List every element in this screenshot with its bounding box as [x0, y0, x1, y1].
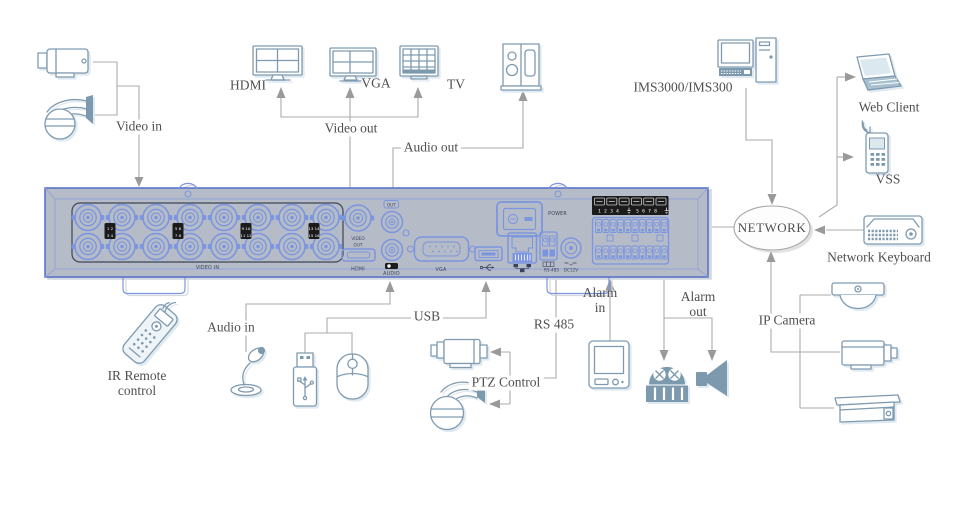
label-audio-out: Audio out	[401, 141, 461, 156]
speaker-icon	[501, 44, 541, 90]
alarm-numbers-right: 5 6 7 8	[636, 209, 658, 215]
label-network: NETWORK	[738, 221, 807, 235]
label-video-in: Video in	[113, 120, 165, 135]
panel-video-in-label: VIDEO IN	[196, 265, 220, 271]
ip-box-camera-icon	[842, 341, 897, 369]
usb-mouse-icon	[337, 354, 368, 399]
svg-text:3 4: 3 4	[107, 233, 114, 238]
hdmi-monitor-icon	[253, 46, 302, 80]
svg-text:11 12: 11 12	[240, 233, 252, 238]
alarm-input-device-icon	[589, 341, 629, 388]
web-client-laptop-icon	[857, 54, 901, 90]
svg-text:7 8: 7 8	[175, 233, 182, 238]
label-alarm-in: Alarm in	[583, 286, 618, 316]
label-usb: USB	[411, 310, 443, 325]
ip-housing-camera-icon	[835, 395, 900, 422]
label-tv: TV	[447, 78, 465, 93]
label-ims: IMS3000/IMS300	[633, 81, 732, 96]
analog-dome-camera-icon	[45, 95, 93, 139]
svg-text:1 2: 1 2	[107, 226, 114, 231]
dvr-connection-diagram: 1 23 45 67 89 1011 1213 1415 16 VIDEO IN…	[0, 0, 977, 507]
label-ip-camera: IP Camera	[756, 314, 819, 329]
ir-remote-icon	[120, 302, 180, 366]
usb-flash-drive-icon	[294, 353, 317, 406]
alarm-numbers-left: 1 2 3 4	[598, 209, 620, 215]
label-web-client: Web Client	[859, 101, 920, 116]
label-rs485: RS 485	[531, 318, 577, 333]
panel-foot-left	[123, 277, 185, 294]
panel-vga-label: VGA	[436, 267, 447, 273]
panel-dc12v-label: DC12V	[564, 268, 578, 273]
label-video-out: Video out	[322, 122, 381, 137]
panel-audio-label: AUDIO	[383, 271, 400, 277]
dvr-rear-panel: 1 23 45 67 89 1011 1213 1415 16 VIDEO IN…	[45, 183, 708, 293]
label-audio-in: Audio in	[204, 321, 258, 336]
ptz-box-camera-icon	[431, 340, 487, 368]
alarm-siren-icon	[646, 367, 688, 402]
panel-power-label: POWER	[548, 211, 567, 217]
microphone-icon	[231, 345, 266, 395]
svg-text:15 16: 15 16	[308, 233, 320, 238]
panel-rs485-label: RS-485	[544, 268, 559, 273]
vss-phone-icon	[862, 121, 888, 173]
analog-bullet-camera-icon	[38, 49, 88, 77]
label-hdmi: HDMI	[230, 79, 266, 94]
label-ptz-control: PTZ Control	[469, 376, 544, 391]
label-ir-remote: IR Remote control	[108, 369, 167, 399]
label-vga: VGA	[361, 77, 390, 92]
panel-hdmi-label: HDMI	[351, 267, 365, 273]
panel-audio-out-tag: OUT	[387, 202, 396, 207]
ims-server-pc-icon	[718, 38, 776, 82]
network-keyboard-icon	[864, 216, 922, 244]
ip-dome-camera-icon	[832, 283, 884, 309]
svg-text:5 6: 5 6	[175, 226, 182, 231]
label-vss: VSS	[876, 173, 901, 188]
label-network-keyboard: Network Keyboard	[827, 251, 931, 266]
panel-video-out-label: VIDEO	[351, 236, 365, 241]
svg-text:OUT: OUT	[354, 243, 363, 248]
svg-text:9 10: 9 10	[242, 226, 251, 231]
svg-text:13 14: 13 14	[308, 226, 320, 231]
tv-icon	[400, 46, 438, 79]
alarm-horn-icon	[696, 360, 727, 396]
label-alarm-out: Alarm out	[681, 290, 716, 320]
